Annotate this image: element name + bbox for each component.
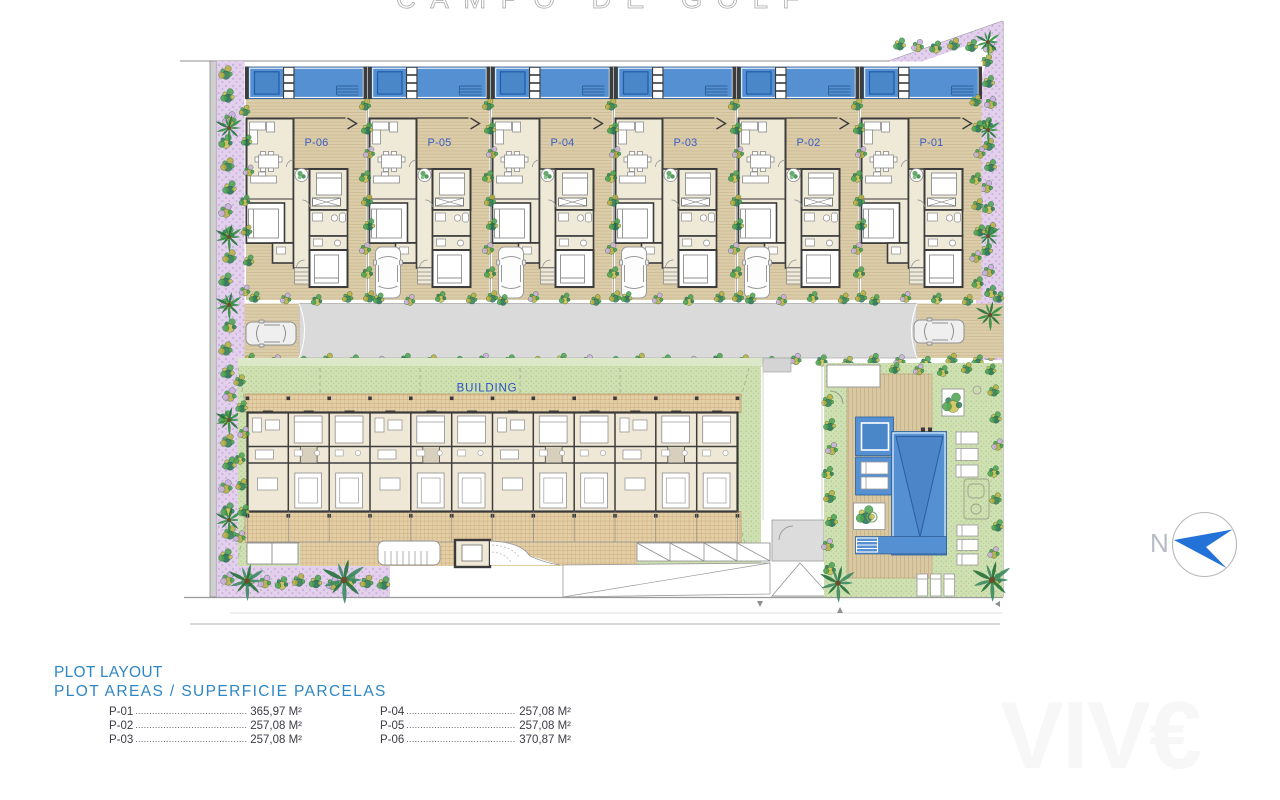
svg-text:CAMPO DE GOLF: CAMPO DE GOLF [396,0,814,14]
svg-text:P-05: P-05 [427,137,451,149]
svg-text:N: N [1150,528,1169,558]
svg-text:P-02: P-02 [109,720,133,732]
svg-text:P-04: P-04 [380,706,405,718]
svg-text:VIV€: VIV€ [1000,682,1201,789]
svg-text:257,08 M²: 257,08 M² [519,706,571,718]
svg-text:P-05: P-05 [380,720,404,732]
svg-text:P-02: P-02 [796,137,820,149]
svg-text:257,08 M²: 257,08 M² [250,734,302,746]
svg-text:P-03: P-03 [673,137,697,149]
svg-text:P-06: P-06 [380,734,404,746]
svg-text:P-03: P-03 [109,734,133,746]
svg-text:P-01: P-01 [919,137,943,149]
svg-text:257,08 M²: 257,08 M² [519,720,571,732]
svg-text:P-06: P-06 [304,137,328,149]
svg-text:365,97 M²: 365,97 M² [250,706,302,718]
svg-text:257,08 M²: 257,08 M² [250,720,302,732]
svg-text:P-01: P-01 [109,706,133,718]
svg-text:BUILDING: BUILDING [457,383,518,395]
svg-text:PLOT AREAS / SUPERFICIE PARCEL: PLOT AREAS / SUPERFICIE PARCELAS [54,683,387,700]
svg-text:PLOT LAYOUT: PLOT LAYOUT [54,664,163,681]
svg-text:370,87 M²: 370,87 M² [519,734,571,746]
svg-text:P-04: P-04 [550,137,574,149]
